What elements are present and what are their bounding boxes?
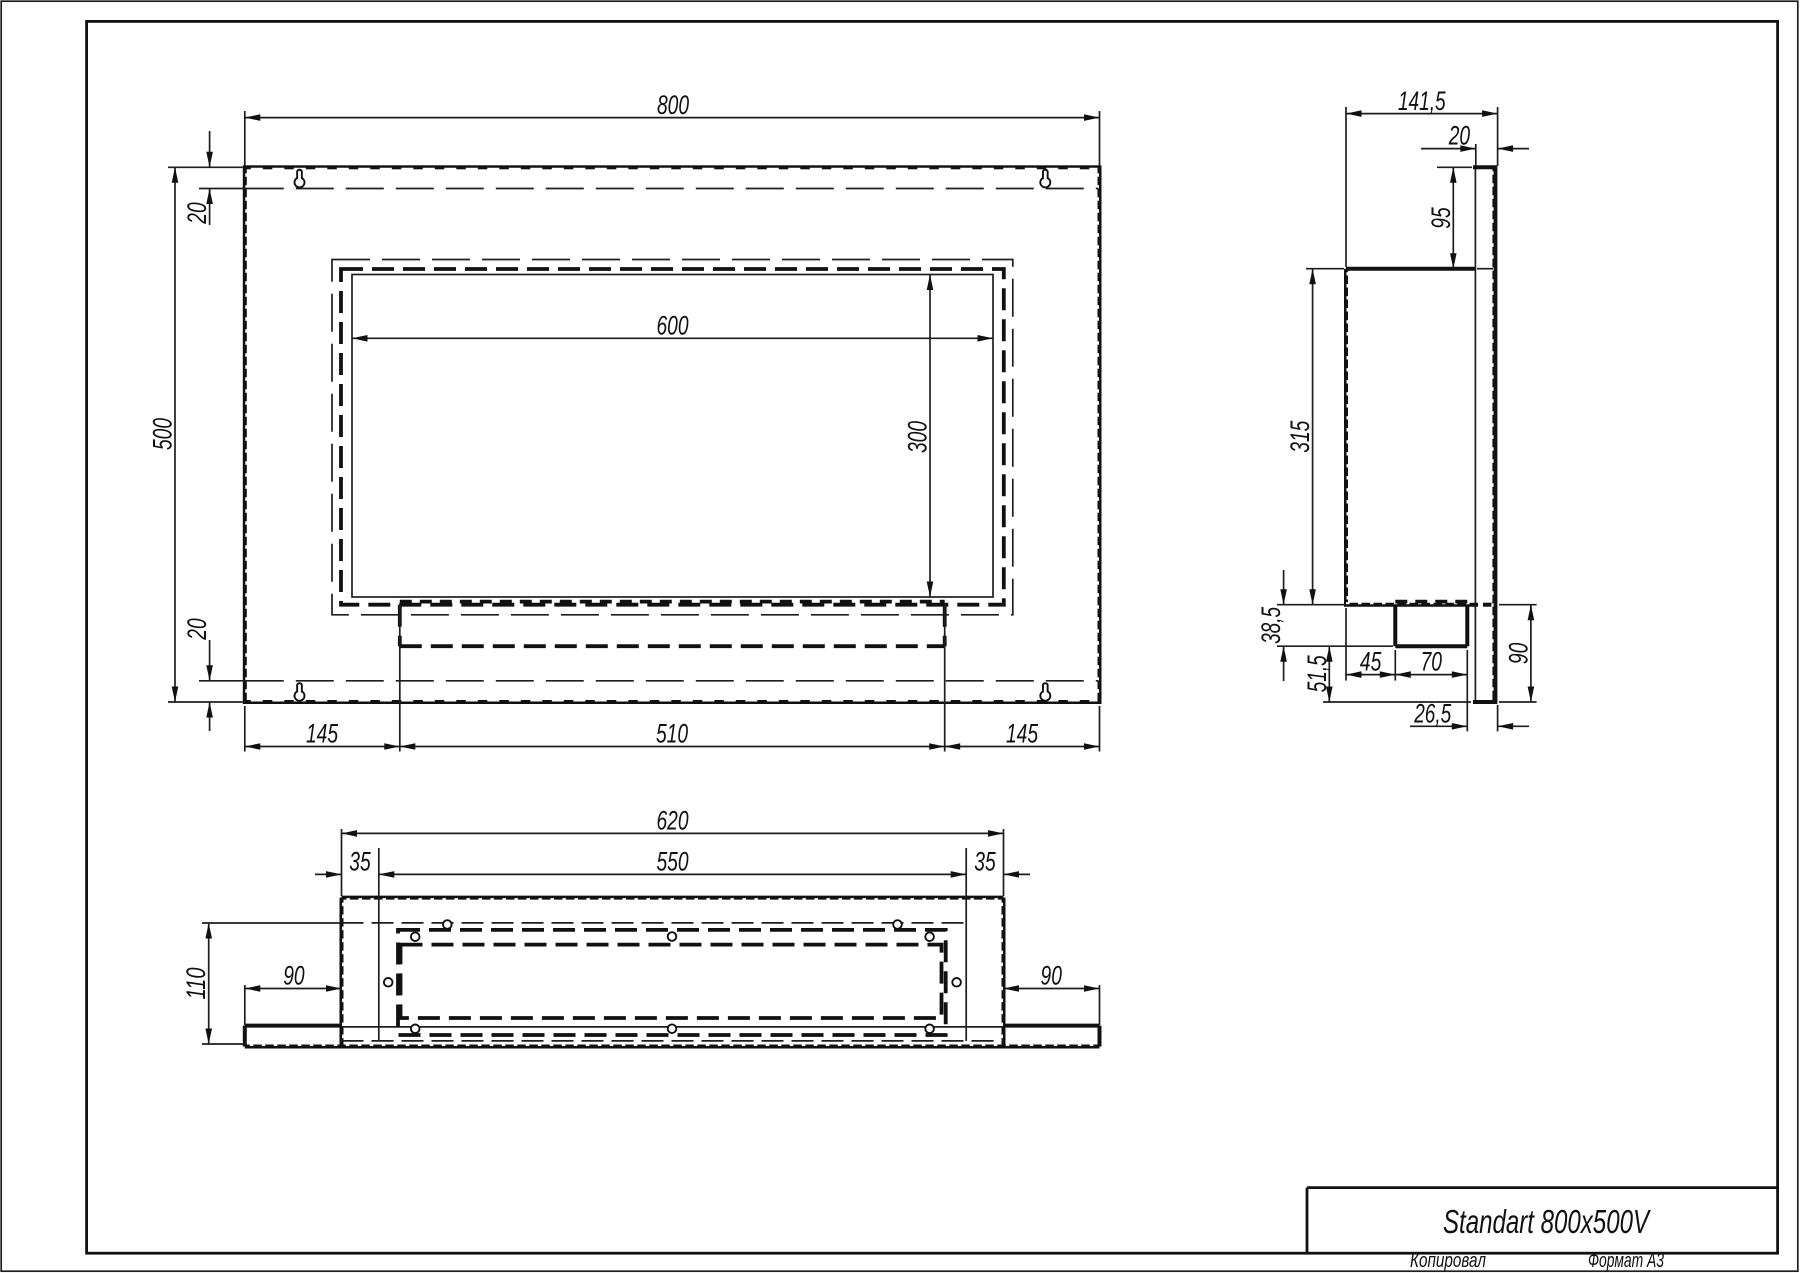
svg-text:620: 620 bbox=[656, 805, 688, 835]
svg-text:45: 45 bbox=[1360, 647, 1382, 677]
svg-text:20: 20 bbox=[1448, 121, 1470, 151]
svg-text:20: 20 bbox=[182, 618, 212, 640]
svg-text:90: 90 bbox=[1503, 643, 1533, 664]
svg-text:35: 35 bbox=[349, 846, 371, 876]
svg-text:35: 35 bbox=[974, 846, 996, 876]
svg-text:20: 20 bbox=[182, 202, 212, 224]
svg-text:510: 510 bbox=[656, 719, 688, 749]
svg-text:51,5: 51,5 bbox=[1302, 655, 1332, 693]
svg-text:800: 800 bbox=[657, 90, 689, 120]
svg-text:141,5: 141,5 bbox=[1398, 86, 1446, 116]
svg-text:Формат А3: Формат А3 bbox=[1588, 1250, 1664, 1272]
svg-text:300: 300 bbox=[903, 421, 933, 453]
svg-text:110: 110 bbox=[181, 967, 211, 999]
svg-text:90: 90 bbox=[1041, 961, 1062, 991]
svg-text:90: 90 bbox=[283, 961, 304, 991]
svg-text:315: 315 bbox=[1285, 420, 1315, 453]
svg-text:145: 145 bbox=[306, 719, 339, 749]
svg-text:Копировал: Копировал bbox=[1410, 1250, 1486, 1272]
svg-text:600: 600 bbox=[656, 310, 688, 340]
svg-text:38,5: 38,5 bbox=[1256, 606, 1286, 644]
svg-text:550: 550 bbox=[656, 846, 688, 876]
svg-text:Standart 800x500V: Standart 800x500V bbox=[1443, 1203, 1651, 1240]
svg-text:145: 145 bbox=[1006, 719, 1039, 749]
svg-text:95: 95 bbox=[1426, 207, 1456, 229]
svg-text:26,5: 26,5 bbox=[1413, 698, 1451, 728]
svg-text:500: 500 bbox=[148, 418, 178, 450]
svg-text:70: 70 bbox=[1421, 647, 1442, 677]
